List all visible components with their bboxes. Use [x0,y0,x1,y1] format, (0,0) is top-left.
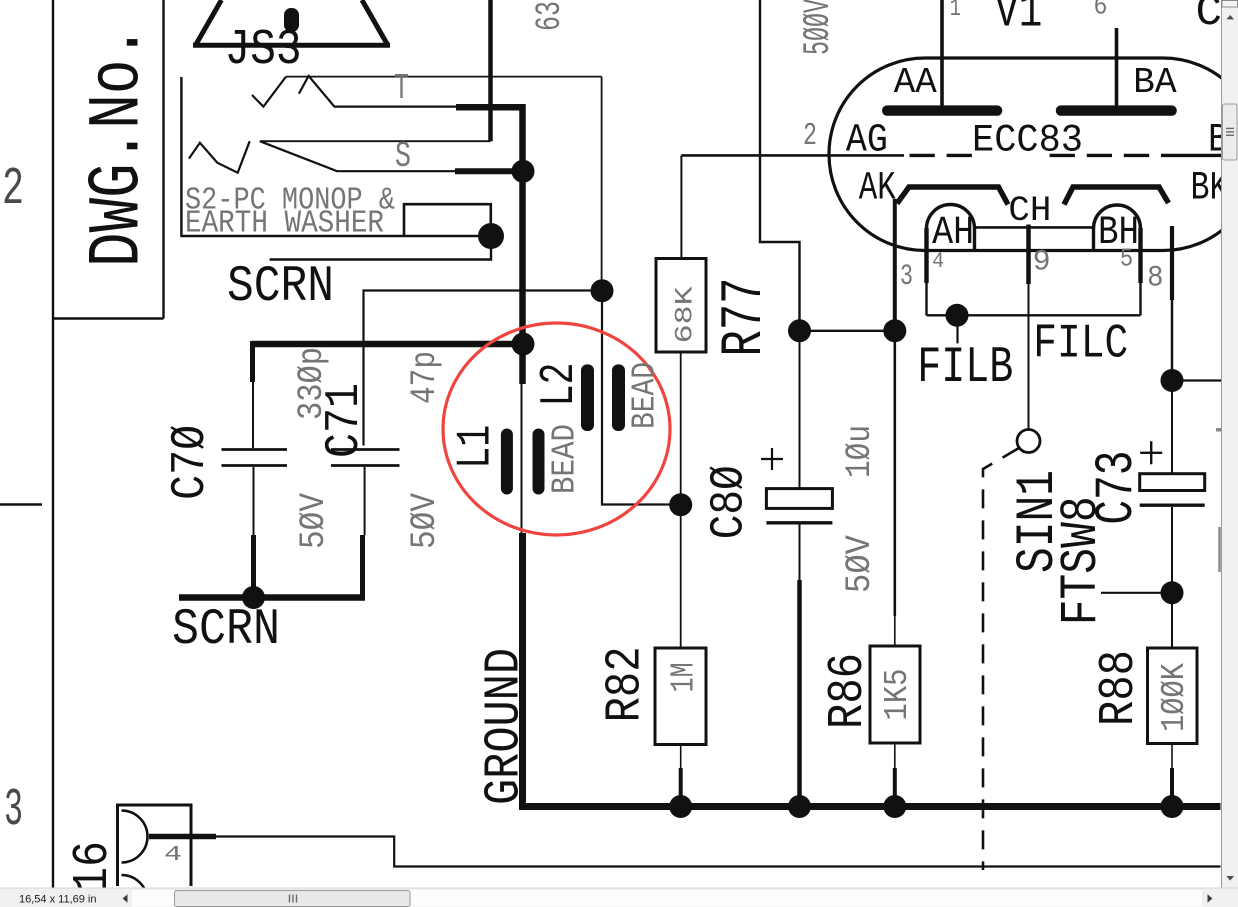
svg-text:S: S [395,135,411,177]
svg-text:2: 2 [2,159,24,219]
svg-text:1Øu: 1Øu [841,425,880,478]
svg-text:EARTH WASHER: EARTH WASHER [185,205,384,242]
svg-text:BEAD: BEAD [546,424,583,494]
svg-text:6: 6 [1094,0,1108,22]
svg-text:T: T [394,67,409,109]
svg-text:JS3: JS3 [225,22,302,79]
svg-text:R86: R86 [819,653,876,729]
svg-text:SCRN: SCRN [172,602,280,659]
svg-text:9: 9 [1033,245,1051,279]
svg-text:68K: 68K [671,286,700,343]
svg-text:2: 2 [803,118,817,154]
svg-text:8: 8 [1147,262,1163,296]
svg-text:3: 3 [4,780,23,840]
svg-text:4: 4 [932,249,944,274]
svg-text:R88: R88 [1090,650,1147,726]
svg-text:C71: C71 [316,383,371,458]
svg-text:16: 16 [64,841,122,893]
svg-text:5: 5 [1120,244,1133,274]
svg-text:CH: CH [1008,191,1051,231]
svg-text:1M: 1M [664,662,703,692]
svg-text:BA: BA [1133,62,1177,103]
svg-text:GROUND: GROUND [476,648,533,805]
svg-text:L1: L1 [448,425,503,469]
svg-text:1ØØK: 1ØØK [1155,663,1194,732]
svg-text:47p: 47p [406,351,445,404]
svg-text:V1: V1 [995,0,1043,41]
svg-text:16,54 x 11,69 in: 16,54 x 11,69 in [19,894,96,906]
svg-text:ECC83: ECC83 [972,119,1083,163]
svg-text:AA: AA [894,62,937,103]
svg-text:5ØV: 5ØV [406,493,445,549]
svg-text:DWG.No.: DWG.No. [76,25,160,267]
svg-text:63: 63 [531,1,570,31]
svg-text:C8Ø: C8Ø [703,465,756,539]
svg-text:BEAD: BEAD [626,362,663,429]
svg-text:4: 4 [164,844,182,868]
svg-text:C7Ø: C7Ø [162,425,217,500]
svg-text:AG: AG [846,119,888,164]
svg-text:R82: R82 [597,646,654,722]
svg-text:L2: L2 [532,363,587,407]
svg-text:5ØØV: 5ØØV [796,0,840,55]
svg-text:FTSW8: FTSW8 [1053,496,1111,625]
svg-text:1K5: 1K5 [878,669,917,721]
svg-text:5ØV: 5ØV [841,535,880,593]
svg-text:FILB: FILB [917,339,1013,397]
svg-text:1: 1 [950,0,961,23]
svg-text:5ØV: 5ØV [295,493,334,549]
svg-text:SCRN: SCRN [227,259,334,316]
svg-text:AK: AK [859,166,896,211]
svg-text:R77: R77 [712,278,779,357]
svg-text:3: 3 [900,260,913,294]
svg-text:FILC: FILC [1033,318,1128,372]
